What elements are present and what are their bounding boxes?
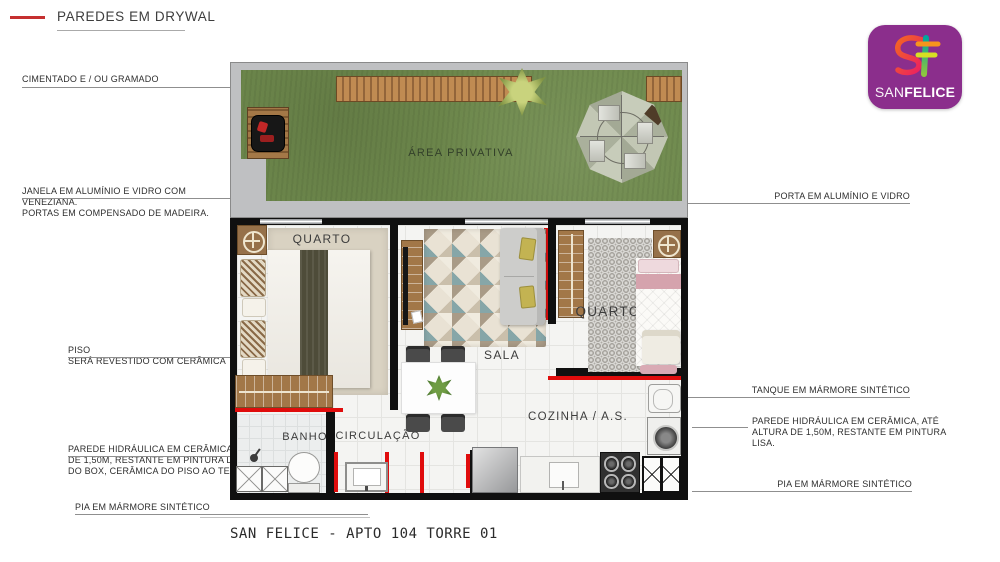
wood-fence-right [646, 76, 682, 102]
shower-head [250, 454, 258, 462]
wardrobe [235, 375, 333, 408]
annotation-parede-direita: PAREDE HIDRÁULICA EM CERÂMICA, ATÉ ALTUR… [752, 416, 946, 449]
shaft-hatch [661, 456, 681, 493]
floorplan: ÁREA PRIVATIVA [230, 62, 688, 500]
gazebo-chair [637, 122, 653, 144]
stove [600, 452, 640, 493]
plan-title: SAN FELICE - APTO 104 TORRE 01 [230, 526, 498, 542]
pillow [240, 259, 266, 297]
leader-tanque [688, 397, 910, 398]
ceiling-light-box [237, 225, 267, 255]
faucet [562, 481, 564, 490]
sf-monogram-icon [888, 32, 942, 78]
room-label-sala: SALA [472, 348, 532, 362]
concrete-path [241, 159, 266, 201]
magazine [411, 310, 423, 324]
leader-piso [68, 357, 231, 358]
bed-runner [636, 274, 681, 289]
tv [403, 247, 408, 325]
drywall-line [334, 452, 338, 492]
glass-door-sala [465, 219, 548, 224]
drywall-line [420, 452, 424, 493]
tv-console [401, 240, 423, 330]
stove-burner [604, 456, 619, 472]
hall-sink [345, 462, 388, 492]
stove-burner [621, 456, 636, 472]
dining-chair [406, 346, 430, 364]
double-bed [268, 250, 370, 388]
ceiling-light-icon [243, 231, 265, 253]
brand-wordmark: SANFELICE [868, 84, 962, 100]
leader-pia-esquerda [75, 514, 368, 515]
wall-sala-quarto2 [548, 225, 556, 324]
ceiling-light-icon [658, 235, 680, 257]
room-label-circulacao: CIRCULAÇÃO [333, 430, 423, 442]
shaft-hatch [642, 456, 662, 493]
gazebo-chair [598, 105, 620, 121]
wall-quarto-sala [390, 225, 398, 410]
gazebo-chair [589, 140, 605, 162]
footer-rule [200, 517, 370, 518]
armchair [642, 330, 680, 364]
leader-pia-direita [692, 491, 912, 492]
laundry-tub [648, 384, 681, 413]
drywall-line [466, 454, 470, 488]
fridge [472, 447, 518, 493]
ceiling-light-box [653, 230, 681, 258]
room-label-cozinha: COZINHA / A.S. [528, 411, 628, 423]
leader-parede-esquerda [68, 456, 237, 457]
stove-burner [621, 474, 636, 490]
kitchen-sink [549, 462, 579, 488]
drywall-line [235, 408, 343, 412]
sofa-pillow [519, 237, 537, 261]
bedside-rug [640, 365, 677, 374]
floorplan-page: PAREDES EM DRYWAL CIMENTADO E / OU GRAMA… [0, 0, 1000, 562]
wall-east [681, 218, 688, 500]
toilet-tank [288, 483, 320, 493]
annotation-porta: PORTA EM ALUMÍNIO E VIDRO [700, 191, 910, 202]
drywall-legend-label: PAREDES EM DRYWAL [57, 9, 215, 24]
window-quarto-right [585, 219, 650, 224]
annotation-pia-esquerda: PIA EM MÁRMORE SINTÉTICO [75, 502, 210, 513]
private-garden-area: ÁREA PRIVATIVA [230, 62, 688, 218]
annotation-piso: PISO SERÁ REVESTIDO COM CERÂMICA [68, 345, 226, 367]
sanfelice-logo: SANFELICE [868, 25, 962, 109]
toilet [288, 452, 320, 483]
dining-chair [441, 346, 465, 364]
washing-machine [647, 417, 681, 455]
room-label-banho: BANHO [270, 431, 340, 443]
annotation-tanque: TANQUE EM MÁRMORE SINTÉTICO [700, 385, 910, 396]
room-label-area-privativa: ÁREA PRIVATIVA [386, 147, 536, 159]
wall-south [230, 493, 688, 500]
drywall-legend-swatch [10, 16, 45, 19]
shower-box [236, 466, 288, 492]
leader-parede-direita [692, 427, 748, 428]
pillow [638, 259, 679, 273]
window-quarto-left [260, 219, 322, 224]
sofa-pillow [519, 285, 536, 308]
dining-chair [441, 414, 465, 432]
annotation-cimentado: CIMENTADO E / OU GRAMADO [22, 74, 159, 85]
annotation-pia-direita: PIA EM MÁRMORE SINTÉTICO [700, 479, 912, 490]
sofa [500, 228, 545, 325]
room-label-quarto-left: QUARTO [272, 232, 372, 246]
legend-underline [57, 30, 185, 31]
room-label-quarto-right: QUARTO [573, 304, 643, 319]
wall-west [230, 218, 237, 500]
bed-runner [300, 250, 328, 388]
annotation-janela: JANELA EM ALUMÍNIO E VIDRO COM VENEZIANA… [22, 186, 209, 219]
drywall-line [548, 376, 681, 380]
stove-burner [604, 474, 619, 490]
barbecue-grill [252, 116, 284, 151]
gazebo-chair [624, 153, 646, 169]
pillow [240, 320, 266, 358]
pillow [242, 298, 266, 317]
kitchen-counter [520, 456, 600, 493]
